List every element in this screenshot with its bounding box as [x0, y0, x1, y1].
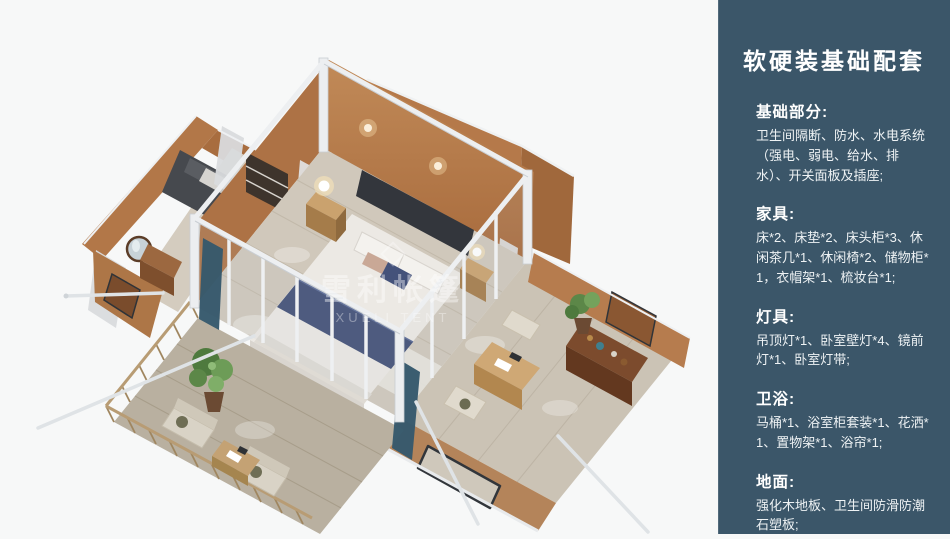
section-basics: 基础部分: 卫生间隔断、防水、水电系统（强电、弱电、给水、排水）、开关面板及插座…	[756, 100, 930, 185]
section-bathroom-heading: 卫浴:	[756, 387, 930, 409]
panel-title: 软硬装基础配套	[743, 42, 930, 76]
floorplan-render-area: 雪利帐篷 XUELI TENT	[0, 0, 718, 534]
section-bathroom-body: 马桶*1、浴室柜套装*1、花洒*1、置物架*1、浴帘*1;	[756, 413, 930, 453]
watermark-cn: 雪利帐篷	[321, 274, 465, 307]
spec-panel: 软硬装基础配套 基础部分: 卫生间隔断、防水、水电系统（强电、弱电、给水、排水）…	[718, 0, 950, 534]
section-floor-body: 强化木地板、卫生间防滑防潮石塑板;	[756, 496, 930, 536]
watermark-en: XUELI TENT	[336, 310, 451, 325]
section-furniture-heading: 家具:	[756, 202, 930, 224]
section-lighting: 灯具: 吊顶灯*1、卧室壁灯*4、镜前灯*1、卧室灯带;	[756, 305, 930, 371]
section-lighting-heading: 灯具:	[756, 305, 930, 327]
section-basics-heading: 基础部分:	[756, 100, 930, 122]
section-floor: 地面: 强化木地板、卫生间防滑防潮石塑板;	[756, 470, 930, 536]
section-furniture-body: 床*2、床垫*2、床头柜*3、休闲茶几*1、休闲椅*2、储物柜*1，衣帽架*1、…	[756, 228, 930, 287]
section-furniture: 家具: 床*2、床垫*2、床头柜*3、休闲茶几*1、休闲椅*2、储物柜*1，衣帽…	[756, 202, 930, 287]
section-bathroom: 卫浴: 马桶*1、浴室柜套装*1、花洒*1、置物架*1、浴帘*1;	[756, 387, 930, 453]
glamping-tent-3d-render: 雪利帐篷 XUELI TENT	[0, 0, 718, 534]
teal-curtain-1	[199, 238, 223, 330]
section-lighting-body: 吊顶灯*1、卧室壁灯*4、镜前灯*1、卧室灯带;	[756, 331, 930, 371]
section-floor-heading: 地面:	[756, 470, 930, 492]
section-basics-body: 卫生间隔断、防水、水电系统（强电、弱电、给水、排水）、开关面板及插座;	[756, 126, 930, 185]
